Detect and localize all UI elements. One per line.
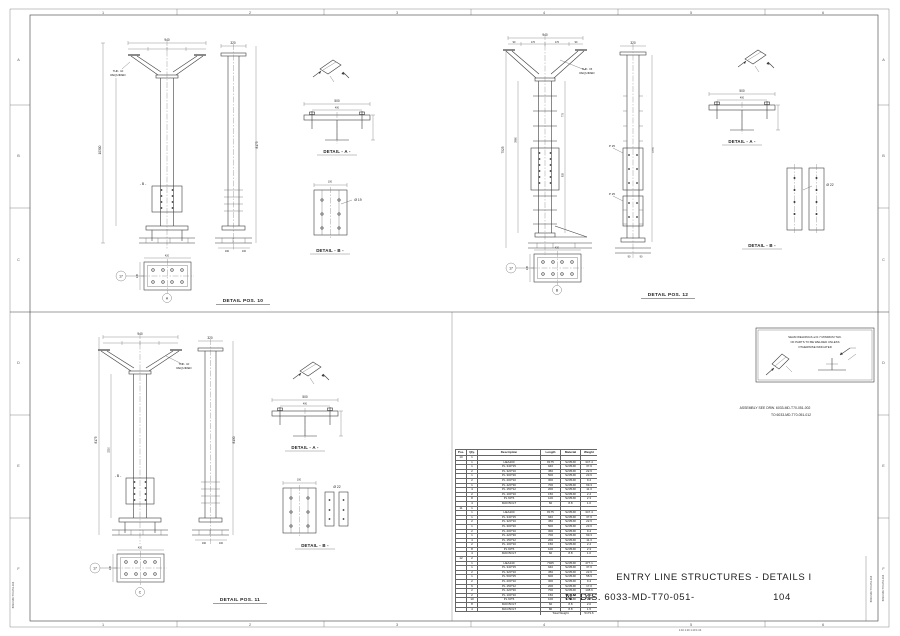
dim-label: 8175 bbox=[94, 436, 98, 443]
dim-label: 100 bbox=[242, 250, 247, 253]
assembly-note: ASSEMBLY SEE DRW. 6033-MD-T70-051-002 TO… bbox=[740, 406, 812, 417]
dim-label: 7925 bbox=[501, 146, 505, 153]
grid-ref-label: A bbox=[17, 58, 20, 62]
title-block: ENTRY LINE STRUCTURES - DETAILS I N° DIS… bbox=[565, 556, 873, 621]
grid-refs-top: 123456 bbox=[102, 11, 824, 15]
grid-ref-label: 4 bbox=[543, 11, 545, 15]
grid-ref-label: 1 bbox=[102, 623, 104, 627]
position-balloon: 17 bbox=[119, 274, 123, 278]
dim-label: 145 bbox=[526, 265, 529, 270]
grid-refs-bottom: 123456 bbox=[102, 623, 824, 627]
grid-ref-label: B bbox=[882, 154, 885, 158]
dim-label: 775 bbox=[562, 112, 565, 117]
weld-note-line2: OF PARTS TO BE WELDED UNLESS bbox=[790, 340, 839, 344]
dim-label: 100 bbox=[297, 479, 302, 482]
view-balloon: C bbox=[139, 590, 142, 594]
quadrant-pos-11: 940 THK. 10 REQUIRED - B - 8175 3210 bbox=[90, 332, 348, 604]
dim-label: 420 bbox=[165, 255, 170, 258]
dim-label: 420 bbox=[555, 247, 560, 250]
dim-label: 10300 bbox=[98, 145, 102, 154]
dim-label: 500 bbox=[302, 395, 308, 399]
grid-refs-right: ABCDEF bbox=[882, 58, 885, 571]
dim-label: 420 bbox=[138, 547, 143, 550]
dim-label: 100 bbox=[219, 542, 224, 545]
quadrant-caption: DETAIL POS. 11 bbox=[220, 597, 260, 603]
weld-note-line3: OTHERWISE INDICATED bbox=[798, 345, 832, 349]
dim-label: 90 bbox=[640, 256, 643, 259]
dim-label: 8130 bbox=[232, 436, 236, 443]
grid-ref-label: 3 bbox=[396, 11, 398, 15]
detail-a-caption: DETAIL - A - bbox=[728, 139, 756, 144]
detail-a: 500 400 DETAIL - A - bbox=[304, 99, 375, 155]
grid-ref-label: 1 bbox=[102, 11, 104, 15]
dim-label: 145 bbox=[109, 565, 112, 570]
plate-label: P 25 bbox=[609, 144, 615, 148]
thk-note: REQUIRED bbox=[110, 73, 125, 77]
grid-ref-label: D bbox=[17, 361, 20, 365]
detail-a: 500 400 DETAIL - A - bbox=[709, 89, 780, 145]
total-weight-label: Total Weight bbox=[541, 612, 581, 615]
dim-label: 3210 bbox=[108, 447, 111, 453]
detail-b: 100 Ø 19 DETAIL - B - bbox=[310, 181, 362, 255]
grid-ref-label: 3 bbox=[396, 623, 398, 627]
hole-size-label: Ø 19 bbox=[354, 198, 361, 202]
grid-ref-label: E bbox=[17, 464, 20, 468]
dim-label: 90 bbox=[575, 41, 578, 44]
hole-size-label: Ø 22 bbox=[333, 485, 340, 489]
dim-label: 170 bbox=[531, 41, 536, 44]
drawing-sheet: 123456 123456 ABCDEF ABCDEF 1:10 1:10 1:… bbox=[0, 0, 900, 636]
thk-note: REQUIRED bbox=[579, 71, 594, 75]
grid-ref-label: 5 bbox=[690, 623, 692, 627]
view-balloon: B bbox=[556, 288, 559, 292]
dim-label: 190 bbox=[225, 250, 230, 253]
parts-table-total-row: Total Weight 5173.6 bbox=[456, 612, 598, 615]
grid-ref-label: E bbox=[882, 464, 885, 468]
side-elevation: 320 P 25 P 25 1770 90 9 bbox=[609, 41, 655, 259]
side-elevation: 320 8130 190 100 bbox=[192, 336, 236, 545]
grid-ref-label: C bbox=[17, 258, 20, 262]
grid-ref-label: 6 bbox=[822, 623, 824, 627]
grid-refs-left: ABCDEF bbox=[17, 58, 20, 571]
parts-table: Pos. Qty. Description Length Material We… bbox=[455, 449, 597, 615]
detail-b: Ø 22 DETAIL - B - bbox=[742, 164, 834, 249]
margin-doc-number: 6033-MD-T70-051-104 bbox=[11, 581, 15, 608]
total-weight-value: 5173.6 bbox=[581, 612, 598, 615]
dim-label: 1770 bbox=[652, 147, 655, 153]
drawing-title: ENTRY LINE STRUCTURES - DETAILS I bbox=[616, 572, 812, 583]
grid-ref-label: B bbox=[17, 154, 20, 158]
front-elevation: 940 THK. 10 REQUIRED - B - 10300 bbox=[98, 38, 206, 250]
weld-note-line1: SEAM WELDINGS a=0.7 MINIMUM THK. bbox=[788, 335, 842, 339]
quadrant-pos-10: 940 THK. 10 REQUIRED - B - 10300 bbox=[98, 38, 375, 305]
iso-bracket-detail bbox=[313, 60, 349, 82]
dim-label: 400 bbox=[303, 403, 308, 406]
dim-label: 145 bbox=[136, 273, 139, 278]
front-elevation: 940 90 170 170 90 THK. 15 REQUIRED bbox=[501, 33, 595, 255]
position-balloon: 17 bbox=[509, 266, 513, 270]
detail-a-caption: DETAIL - A - bbox=[291, 445, 319, 450]
dim-label: 500 bbox=[334, 99, 340, 103]
detail-b-caption: DETAIL - B - bbox=[748, 243, 776, 248]
detail-b-caption: DETAIL - B - bbox=[316, 248, 344, 253]
front-elevation: 940 THK. 10 REQUIRED - B - 8175 3210 bbox=[94, 332, 192, 544]
weld-symbol-left bbox=[766, 354, 792, 375]
section-mark: - B - bbox=[140, 182, 146, 186]
title-strip-doc-number: 6033-MD-T70-051-104 bbox=[869, 575, 873, 602]
base-plate-plan: 420 145 17 B bbox=[506, 247, 584, 295]
view-balloon: A bbox=[166, 296, 169, 300]
plate-label: P 25 bbox=[609, 192, 615, 196]
grid-ref-label: 6 bbox=[822, 11, 824, 15]
grid-ref-label: 2 bbox=[249, 623, 251, 627]
hole-size-label: Ø 22 bbox=[826, 183, 833, 187]
right-margin-doc-number: 6033-MD-T70-051-104 bbox=[881, 574, 885, 601]
grid-ref-label: F bbox=[17, 567, 20, 571]
dim-label: 320 bbox=[230, 41, 236, 45]
grid-ref-label: F bbox=[882, 567, 885, 571]
dim-label: 400 bbox=[335, 107, 340, 110]
dim-label: 8175 bbox=[255, 141, 259, 148]
dim-label: 400 bbox=[740, 97, 745, 100]
iso-bracket-detail bbox=[293, 362, 329, 384]
dim-label: 3960 bbox=[515, 137, 518, 143]
dim-label: 935 bbox=[562, 172, 565, 177]
base-plate-plan: 420 145 17 C bbox=[90, 547, 167, 597]
grid-ref-label: 4 bbox=[543, 623, 545, 627]
base-plate-plan: 420 145 17 A bbox=[116, 255, 194, 303]
grid-ref-label: 2 bbox=[249, 11, 251, 15]
quadrant-pos-12: 940 90 170 170 90 THK. 15 REQUIRED bbox=[501, 33, 834, 299]
position-balloon: 17 bbox=[93, 566, 97, 570]
grid-ref-label: A bbox=[882, 58, 885, 62]
assembly-note-line2: TO 6033-MD-T70-051-012 bbox=[771, 413, 811, 417]
quadrant-caption: DETAIL POS. 10 bbox=[223, 298, 264, 304]
dim-label: 500 bbox=[739, 89, 745, 93]
drawing-canvas: 123456 123456 ABCDEF ABCDEF 1:10 1:10 1:… bbox=[0, 0, 900, 636]
dim-label: 100 bbox=[328, 181, 333, 184]
dim-label: 190 bbox=[202, 542, 207, 545]
drawing-sheet-number: 104 bbox=[773, 592, 791, 603]
weld-note: SEAM WELDINGS a=0.7 MINIMUM THK. OF PART… bbox=[756, 328, 874, 382]
footer-scale-text: 1:10 1:10 1:10 1:10 bbox=[679, 628, 702, 632]
detail-b: 100 Ø 22 DETAIL - B - bbox=[283, 479, 348, 550]
dim-label: 90 bbox=[628, 256, 631, 259]
detail-a: 500 400 DETAIL - A - bbox=[272, 395, 343, 451]
quadrant-caption: DETAIL POS. 12 bbox=[648, 292, 689, 298]
detail-b-caption: DETAIL - B - bbox=[301, 543, 329, 548]
grid-ref-label: D bbox=[882, 361, 885, 365]
detail-a-caption: DETAIL - A - bbox=[323, 149, 351, 154]
assembly-note-line1: ASSEMBLY SEE DRW. 6033-MD-T70-051-002 bbox=[740, 406, 811, 410]
side-elevation: 320 8175 190 100 bbox=[215, 41, 259, 253]
section-mark: - B - bbox=[115, 474, 121, 478]
iso-bracket-detail bbox=[738, 50, 774, 72]
grid-ref-label: C bbox=[882, 258, 885, 262]
dim-label: 320 bbox=[207, 336, 213, 340]
grid-ref-label: 5 bbox=[690, 11, 692, 15]
sheet-frame: 123456 123456 ABCDEF ABCDEF 1:10 1:10 1:… bbox=[10, 9, 889, 632]
dim-label: 90 bbox=[513, 41, 516, 44]
dim-label: 170 bbox=[555, 41, 560, 44]
thk-note: REQUIRED bbox=[176, 366, 191, 370]
weld-symbol-right bbox=[818, 348, 856, 370]
